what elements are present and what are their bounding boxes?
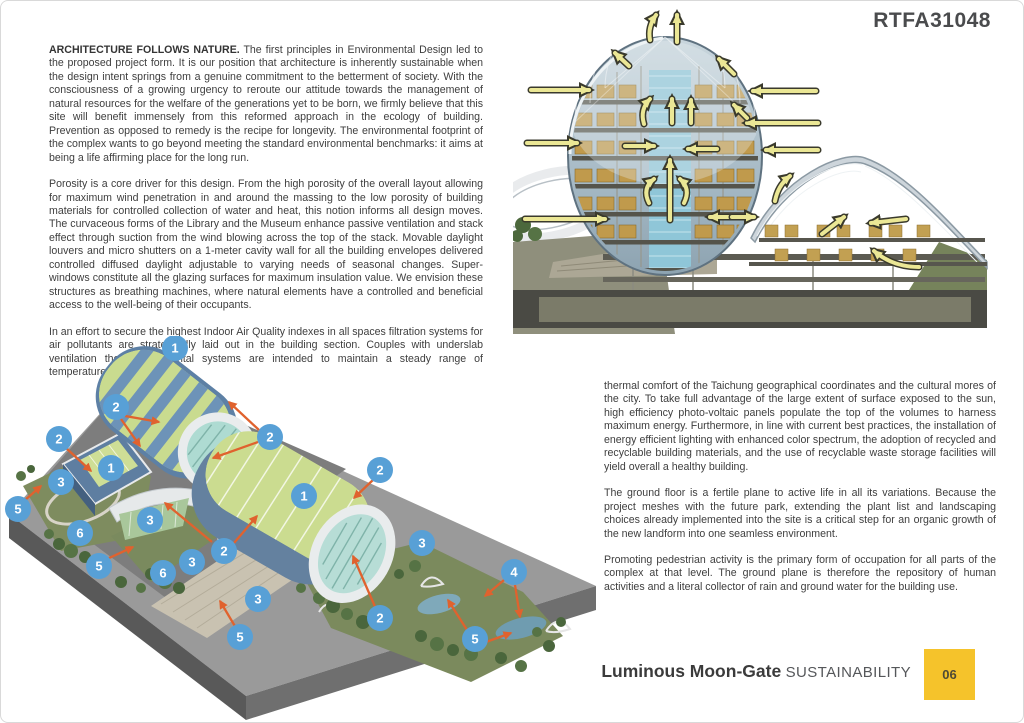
callout-number: 5 — [471, 632, 478, 647]
callout-number: 2 — [376, 463, 383, 478]
site-diagram-svg: 122213536235635123245 — [1, 336, 601, 723]
section-diagram-svg — [513, 4, 1021, 334]
callout-number: 6 — [159, 566, 166, 581]
callout-number: 4 — [510, 565, 518, 580]
site-diagram: 122213536235635123245 LEGEND 1.Photo-vol… — [1, 336, 601, 723]
callout-number: 3 — [418, 536, 425, 551]
callout-number: 1 — [107, 461, 114, 476]
footer: Luminous Moon-Gate SUSTAINABILITY 06 — [601, 649, 999, 701]
callout-number: 5 — [14, 502, 21, 517]
section-title: SUSTAINABILITY — [786, 664, 911, 681]
section-diagram — [513, 4, 1021, 334]
page-number: 06 — [942, 667, 956, 682]
callout-number: 3 — [146, 513, 153, 528]
paragraph-1-lead: ARCHITECTURE FOLLOWS NATURE. — [49, 44, 240, 56]
callout-number: 2 — [220, 544, 227, 559]
page-number-box: 06 — [924, 649, 975, 700]
callout-number: 5 — [95, 559, 102, 574]
callout-number: 3 — [57, 475, 64, 490]
callout-number: 3 — [188, 555, 195, 570]
callout-number: 3 — [254, 592, 261, 607]
callout-number: 1 — [300, 489, 307, 504]
callout-number: 1 — [171, 341, 178, 356]
callout-number: 2 — [55, 432, 62, 447]
paragraph-1-body: The first principles in Environmental De… — [49, 44, 483, 164]
ground-terrain — [513, 217, 987, 334]
paragraph-1: ARCHITECTURE FOLLOWS NATURE. The first p… — [49, 44, 483, 165]
right-text-column: thermal comfort of the Taichung geograph… — [604, 380, 996, 607]
document-page: RTFA31048 ARCHITECTURE FOLLOWS NATURE. T… — [0, 0, 1024, 723]
paragraph-4: thermal comfort of the Taichung geograph… — [604, 380, 996, 474]
callout-number: 5 — [236, 630, 243, 645]
callout-number: 6 — [76, 526, 83, 541]
paragraph-5: The ground floor is a fertile plane to a… — [604, 487, 996, 541]
callout-number: 2 — [266, 430, 273, 445]
paragraph-2: Porosity is a core driver for this desig… — [49, 178, 483, 313]
callout-number: 2 — [112, 400, 119, 415]
project-title: Luminous Moon-Gate — [601, 661, 781, 681]
paragraph-6: Promoting pedestrian activity is the pri… — [604, 554, 996, 594]
callout-number: 2 — [376, 611, 383, 626]
footer-title: Luminous Moon-Gate SUSTAINABILITY — [601, 661, 911, 682]
